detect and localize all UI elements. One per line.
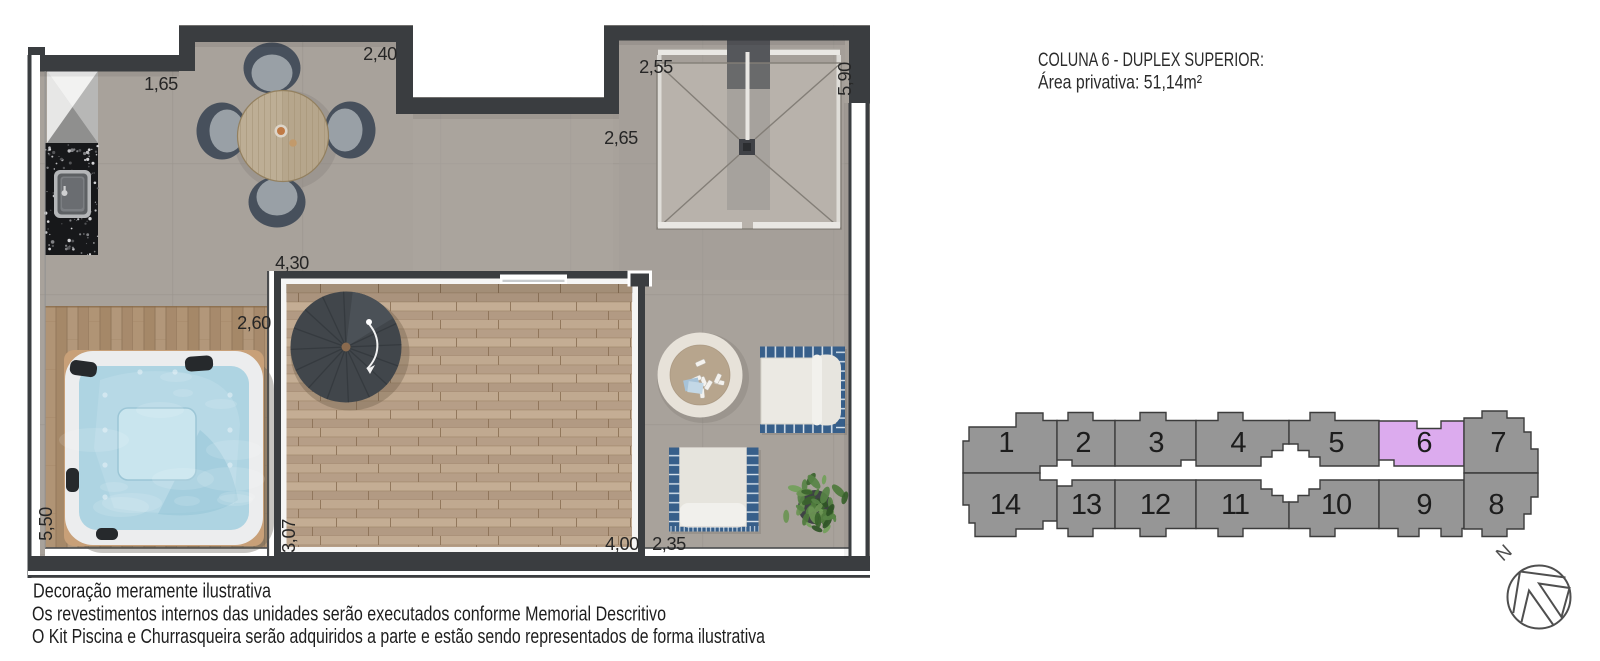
svg-text:6: 6 <box>1416 427 1431 459</box>
svg-text:12: 12 <box>1140 489 1170 521</box>
svg-text:4: 4 <box>1230 427 1246 459</box>
svg-text:3,07: 3,07 <box>279 519 299 553</box>
svg-text:5: 5 <box>1328 427 1343 459</box>
svg-text:1,65: 1,65 <box>144 74 178 94</box>
svg-text:2,65: 2,65 <box>604 128 638 148</box>
svg-text:5,50: 5,50 <box>36 507 56 541</box>
svg-text:3: 3 <box>1148 427 1163 459</box>
svg-text:7: 7 <box>1490 427 1505 459</box>
svg-text:2,55: 2,55 <box>639 57 673 77</box>
svg-text:Área privativa: 51,14m²: Área privativa: 51,14m² <box>1038 71 1202 94</box>
svg-text:11: 11 <box>1221 489 1249 521</box>
svg-text:N: N <box>1492 541 1516 566</box>
svg-text:9: 9 <box>1416 489 1431 521</box>
svg-text:2,40: 2,40 <box>363 44 397 64</box>
svg-text:1: 1 <box>998 427 1013 459</box>
svg-text:4,00: 4,00 <box>605 534 639 554</box>
svg-text:14: 14 <box>990 489 1021 521</box>
svg-text:2,60: 2,60 <box>237 313 271 333</box>
svg-text:4,30: 4,30 <box>275 253 309 273</box>
svg-text:2: 2 <box>1075 427 1090 459</box>
svg-text:Os revestimentos internos das: Os revestimentos internos das unidades s… <box>32 604 666 626</box>
svg-text:13: 13 <box>1071 489 1101 521</box>
svg-text:COLUNA 6 - DUPLEX SUPERIOR:: COLUNA 6 - DUPLEX SUPERIOR: <box>1038 49 1264 71</box>
svg-text:10: 10 <box>1321 489 1351 521</box>
svg-text:Decoração meramente ilustrativ: Decoração meramente ilustrativa <box>33 581 272 603</box>
svg-text:2,35: 2,35 <box>652 534 686 554</box>
svg-text:5,90: 5,90 <box>835 62 855 96</box>
svg-text:8: 8 <box>1488 489 1503 521</box>
svg-text:O Kit Piscina e Churrasqueira: O Kit Piscina e Churrasqueira serão adqu… <box>32 626 766 648</box>
